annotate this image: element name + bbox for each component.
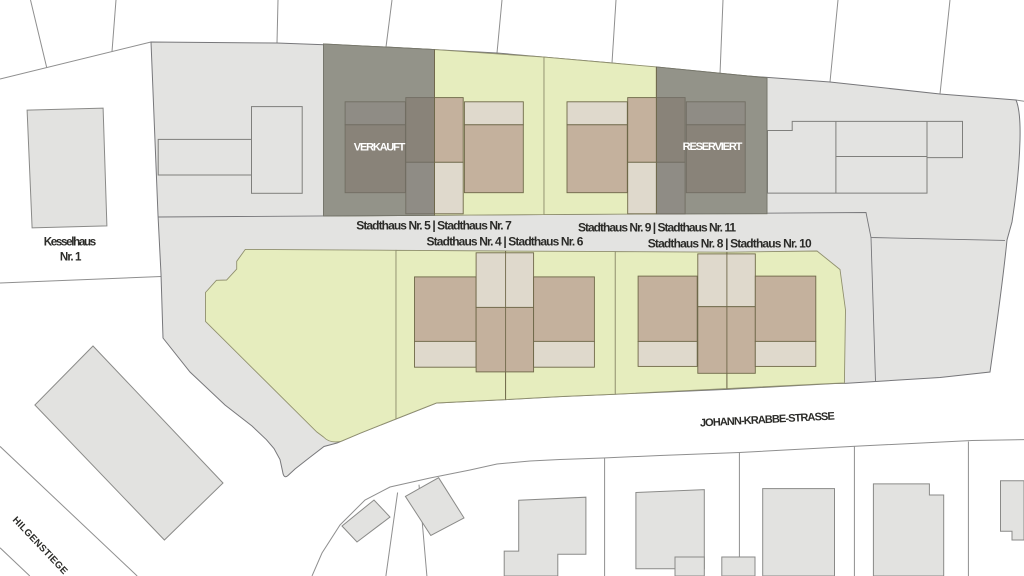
svg-text:Stadthaus Nr. 5 | Stadthaus Nr: Stadthaus Nr. 5 | Stadthaus Nr. 7 xyxy=(356,218,512,232)
svg-text:Stadthaus Nr. 4 | Stadthaus Nr: Stadthaus Nr. 4 | Stadthaus Nr. 6 xyxy=(427,235,584,249)
svg-text:VERKAUFT: VERKAUFT xyxy=(354,142,406,154)
svg-text:Stadthaus Nr. 8 | Stadthaus Nr: Stadthaus Nr. 8 | Stadthaus Nr. 10 xyxy=(648,236,812,250)
svg-text:Stadthaus Nr. 9 | Stadthaus Nr: Stadthaus Nr. 9 | Stadthaus Nr. 11 xyxy=(578,220,736,234)
svg-text:Kesselhaus: Kesselhaus xyxy=(44,235,97,248)
svg-text:RESERVIERT: RESERVIERT xyxy=(683,141,743,153)
svg-text:Nr. 1: Nr. 1 xyxy=(60,250,82,263)
